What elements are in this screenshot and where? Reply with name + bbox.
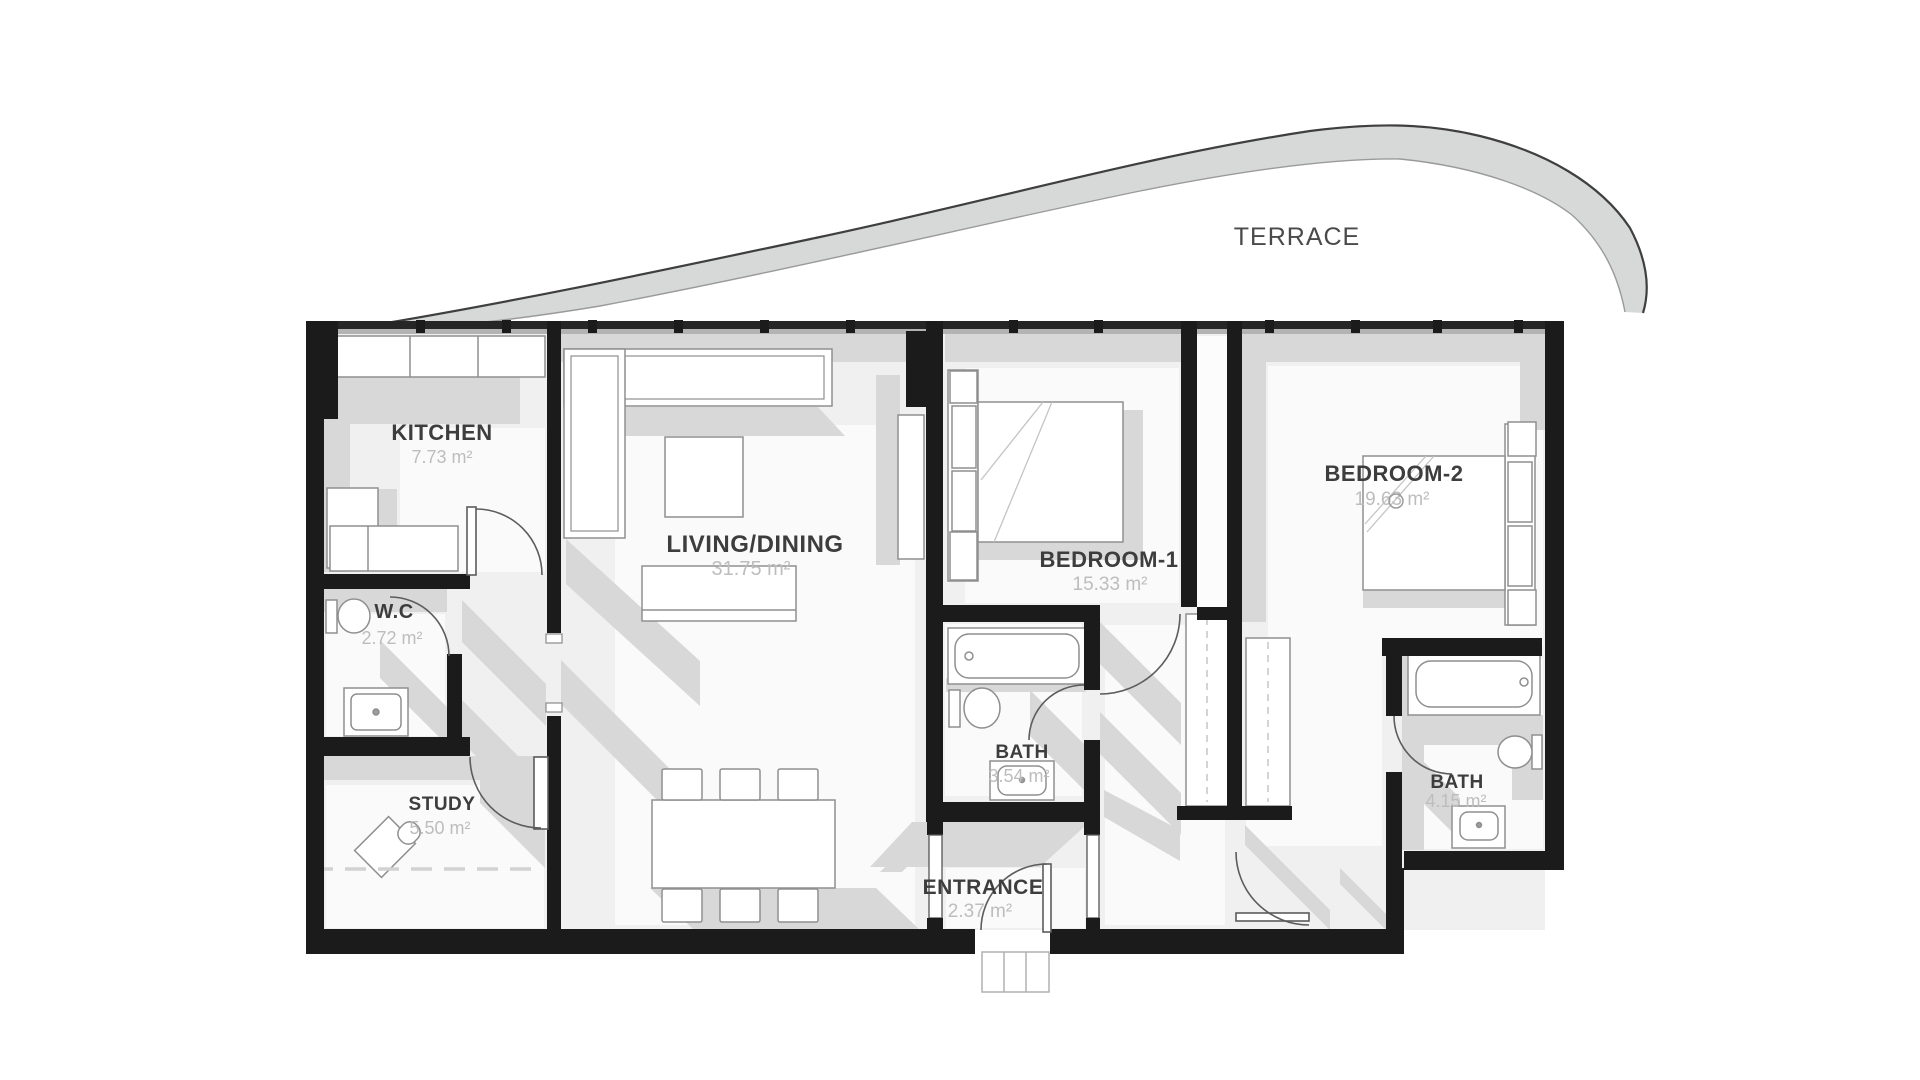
svg-text:TERRACE: TERRACE [1234,223,1360,251]
svg-text:LIVING/DINING: LIVING/DINING [666,531,843,558]
svg-text:7.73 m²: 7.73 m² [411,447,472,467]
svg-text:2.72 m²: 2.72 m² [361,628,422,648]
svg-text:KITCHEN: KITCHEN [391,420,492,445]
svg-text:ENTRANCE: ENTRANCE [923,876,1044,899]
svg-text:5.50 m²: 5.50 m² [409,818,470,838]
svg-text:31.75 m²: 31.75 m² [712,558,791,580]
svg-text:W.C: W.C [374,601,413,623]
svg-text:15.33 m²: 15.33 m² [1073,574,1148,595]
svg-text:BATH: BATH [995,742,1048,763]
svg-text:BATH: BATH [1430,772,1483,793]
svg-text:BEDROOM-1: BEDROOM-1 [1040,547,1179,572]
svg-text:BEDROOM-2: BEDROOM-2 [1325,461,1464,486]
svg-text:3.54 m²: 3.54 m² [988,766,1049,786]
svg-text:2.37 m²: 2.37 m² [948,901,1012,922]
svg-text:STUDY: STUDY [409,794,476,815]
svg-text:4.15 m²: 4.15 m² [1425,791,1486,811]
